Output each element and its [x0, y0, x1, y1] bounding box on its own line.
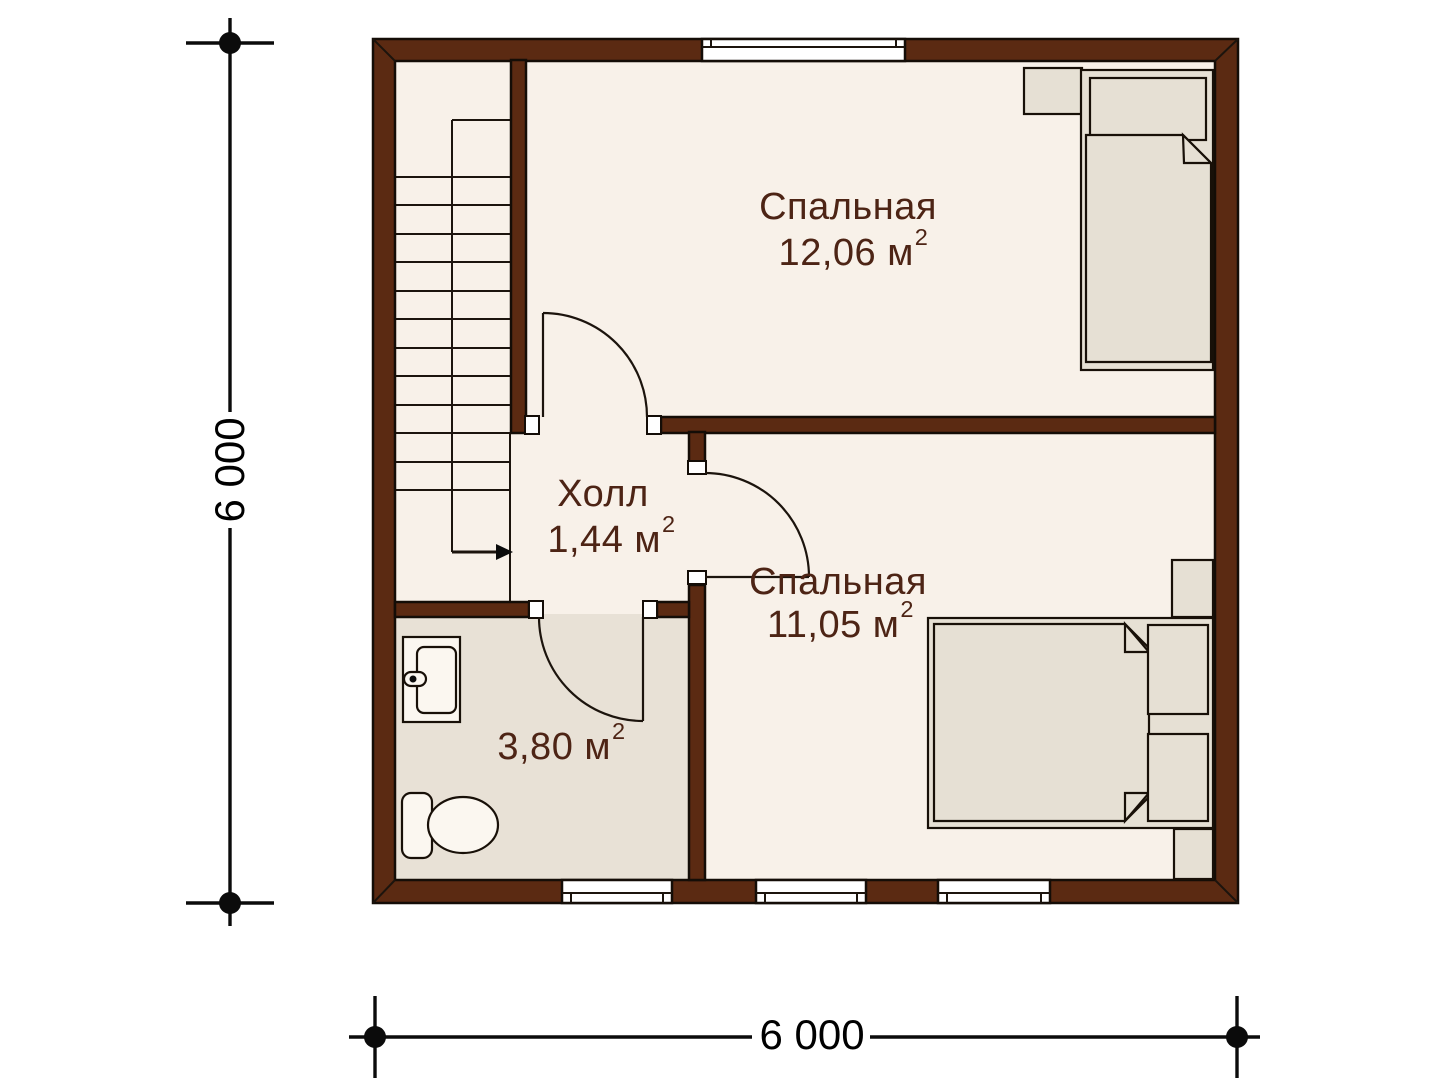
floor-plan-drawing — [0, 0, 1440, 1080]
single-bed — [1081, 70, 1213, 370]
sink — [403, 637, 460, 722]
pillow — [1148, 625, 1208, 714]
hall-bedroom-wall-stub — [689, 432, 705, 462]
dimension-label-left: 6 000 — [209, 417, 251, 522]
toilet-bowl — [428, 797, 498, 853]
window-bottom-bedroom-right — [938, 880, 1050, 903]
double-bed — [928, 618, 1213, 828]
blanket — [934, 624, 1149, 821]
room-area-hall: 1,44 м2 — [547, 519, 674, 559]
bedrooms-divider-wall — [661, 417, 1215, 433]
bathroom-wall-left — [395, 602, 529, 617]
pillow — [1090, 78, 1206, 140]
window-top — [702, 39, 905, 61]
window-bottom-bathroom — [562, 880, 672, 903]
floor-plan-canvas: Спальная 12,06 м2 Холл 1,44 м2 Спальная … — [0, 0, 1440, 1080]
room-area-bedroom-top: 12,06 м2 — [779, 232, 928, 272]
pillow — [1148, 734, 1208, 821]
room-name-bedroom-top: Спальная — [759, 188, 937, 226]
room-area-bedroom-bottom: 11,05 м2 — [767, 604, 913, 644]
room-area-bathroom: 3,80 м2 — [497, 726, 624, 766]
stair-wall — [511, 60, 526, 433]
nightstand — [1174, 829, 1213, 879]
bathroom-wall-right — [657, 602, 689, 617]
window-bottom-bedroom-left — [756, 880, 866, 903]
room-name-hall: Холл — [557, 475, 649, 513]
bathroom-bedroom-wall — [689, 585, 705, 880]
dimension-label-bottom: 6 000 — [759, 1014, 864, 1056]
toilet — [402, 793, 498, 858]
nightstand — [1172, 560, 1213, 617]
blanket — [1086, 135, 1211, 362]
nightstand — [1024, 68, 1082, 114]
